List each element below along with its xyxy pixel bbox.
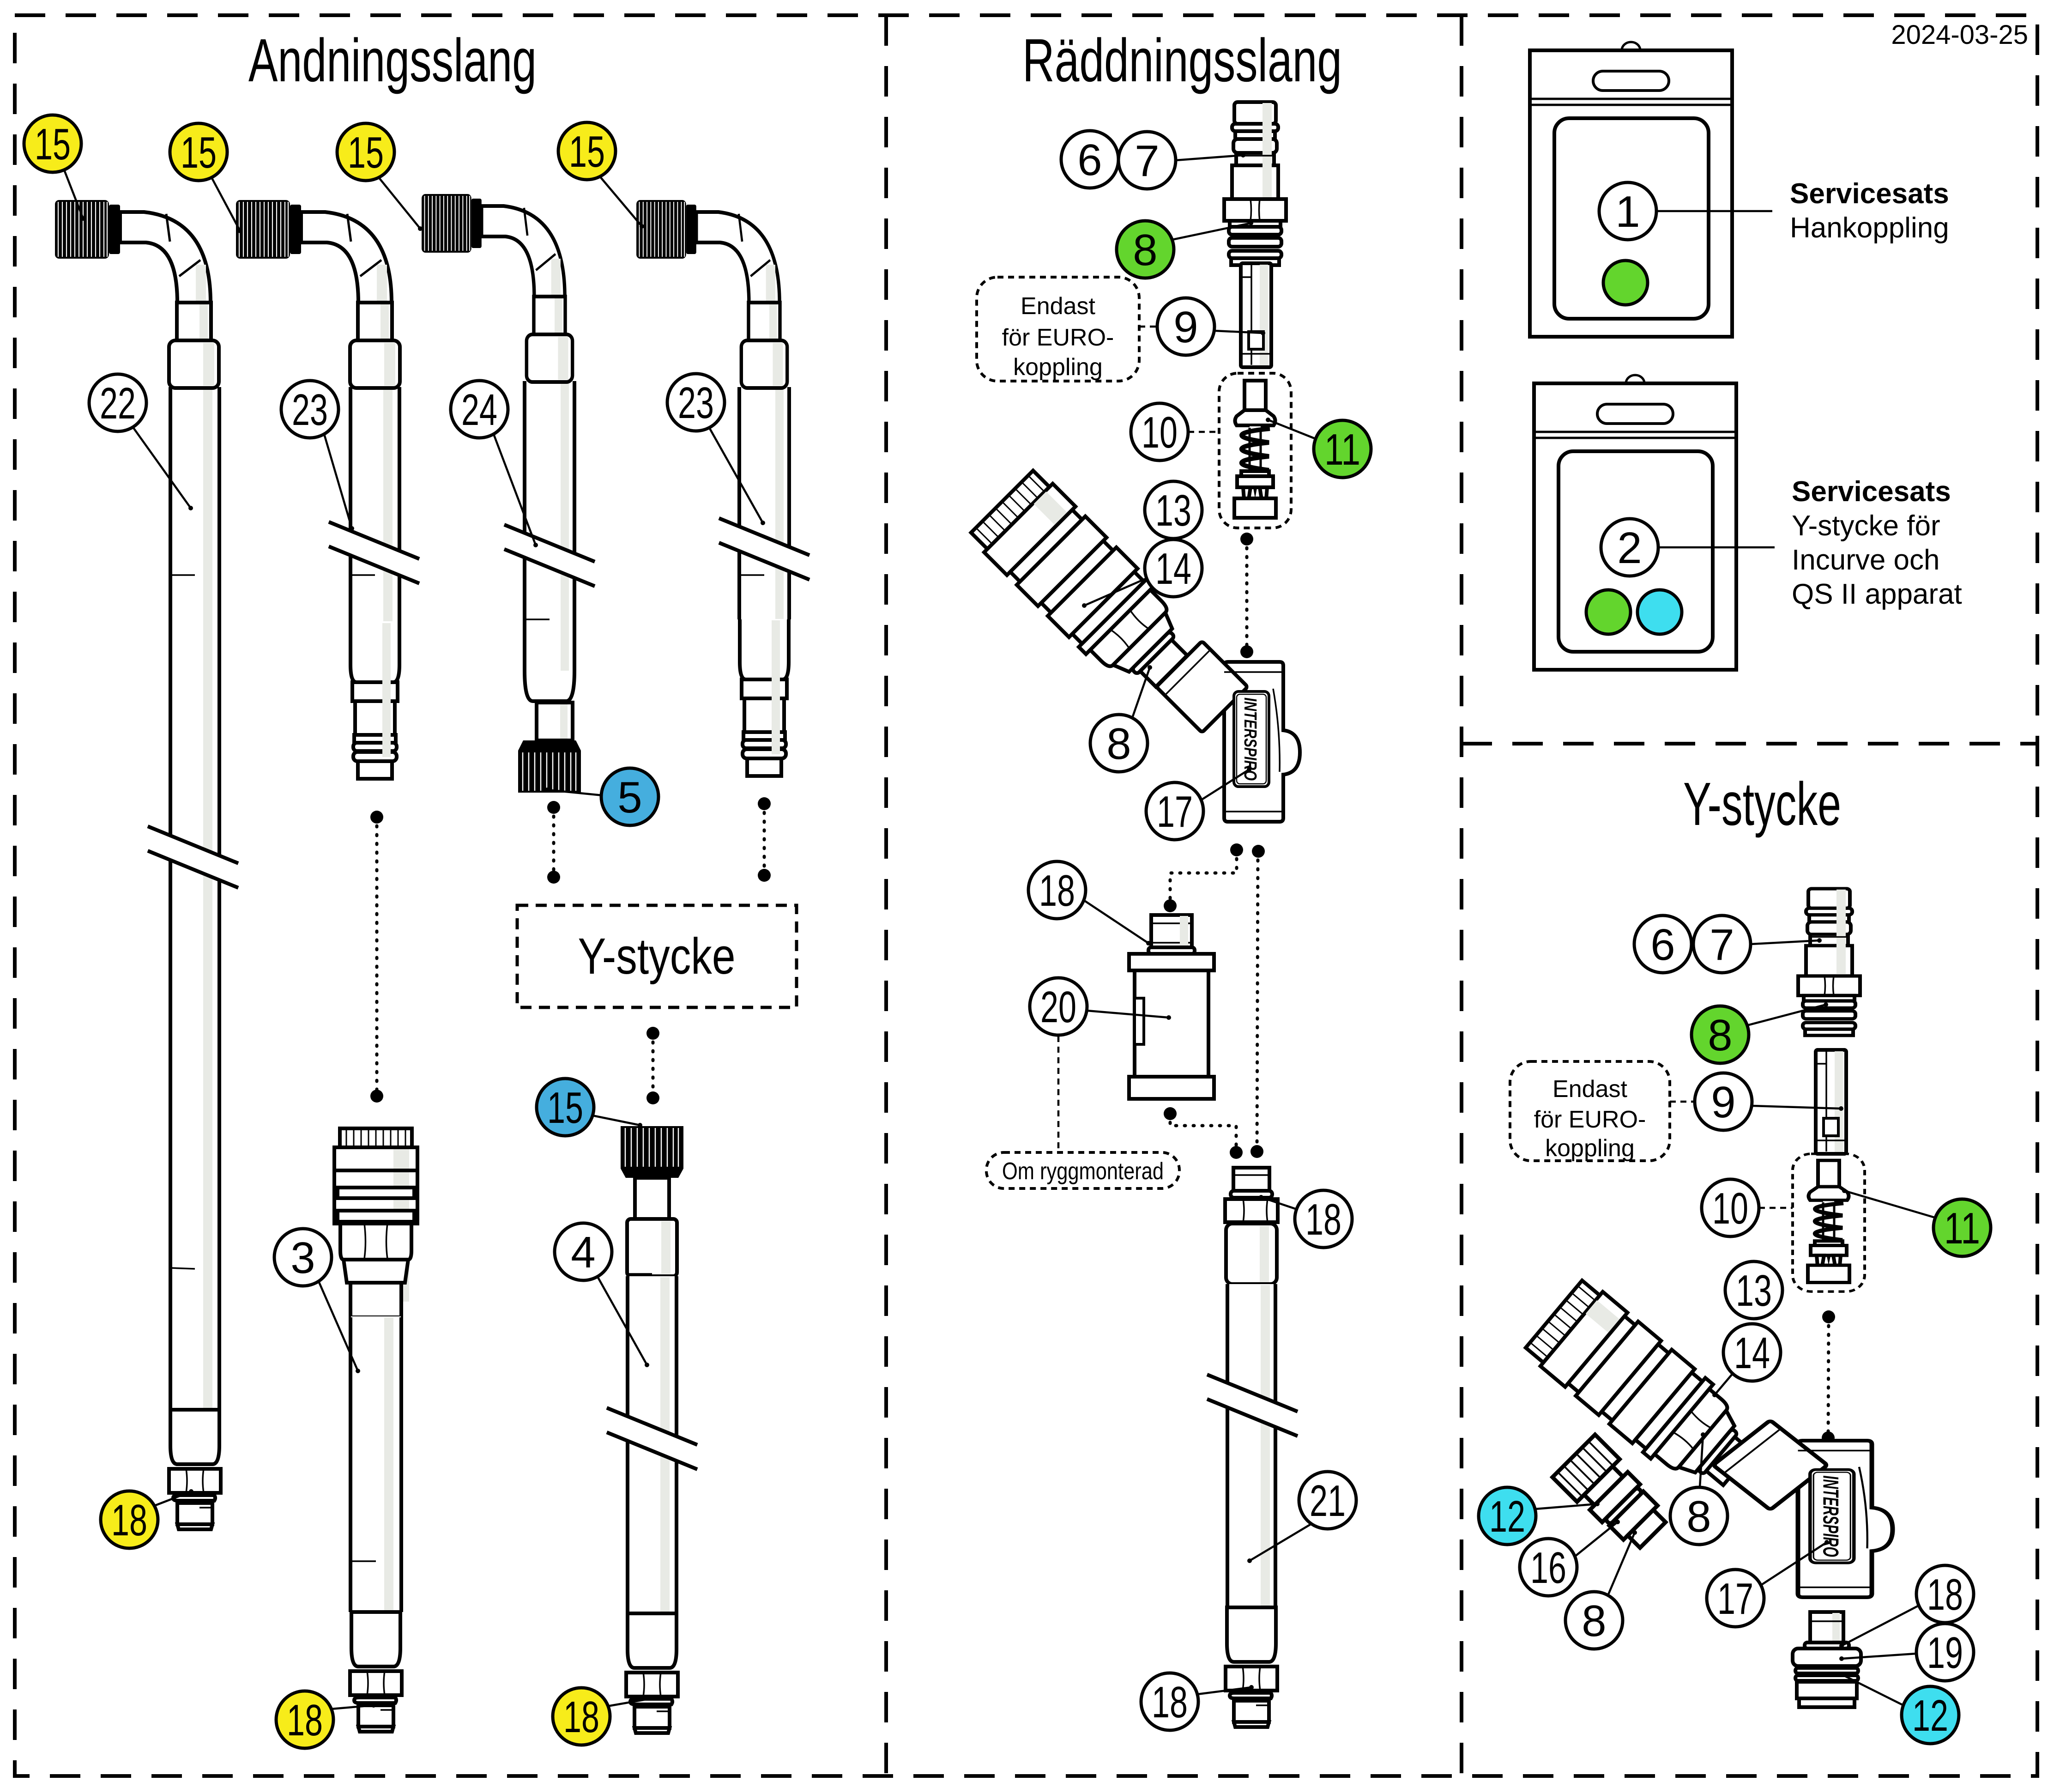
svg-text:20: 20 bbox=[1040, 982, 1076, 1032]
svg-text:2024-03-25: 2024-03-25 bbox=[1891, 20, 2028, 50]
svg-text:15: 15 bbox=[547, 1083, 583, 1133]
svg-text:16: 16 bbox=[1530, 1543, 1566, 1593]
svg-text:11: 11 bbox=[1944, 1204, 1980, 1253]
svg-text:14: 14 bbox=[1155, 544, 1191, 594]
svg-text:13: 13 bbox=[1155, 486, 1191, 535]
svg-text:Y-stycke för: Y-stycke för bbox=[1792, 510, 1940, 542]
svg-text:15: 15 bbox=[348, 128, 384, 177]
svg-text:9: 9 bbox=[1711, 1078, 1735, 1127]
svg-text:11: 11 bbox=[1324, 425, 1360, 474]
svg-text:13: 13 bbox=[1736, 1266, 1772, 1315]
svg-text:18: 18 bbox=[1927, 1570, 1963, 1619]
svg-text:Y-stycke: Y-stycke bbox=[1683, 770, 1841, 838]
svg-text:24: 24 bbox=[461, 385, 497, 435]
svg-text:15: 15 bbox=[35, 120, 71, 169]
svg-text:9: 9 bbox=[1173, 303, 1198, 352]
svg-text:15: 15 bbox=[569, 127, 605, 176]
svg-text:8: 8 bbox=[1106, 719, 1131, 769]
svg-text:19: 19 bbox=[1927, 1628, 1963, 1678]
svg-text:15: 15 bbox=[181, 128, 217, 177]
svg-text:6: 6 bbox=[1077, 135, 1102, 185]
svg-text:Endast: Endast bbox=[1021, 293, 1095, 320]
svg-text:QS II apparat: QS II apparat bbox=[1792, 578, 1962, 610]
svg-text:12: 12 bbox=[1912, 1691, 1948, 1740]
svg-text:17: 17 bbox=[1157, 787, 1193, 836]
svg-text:12: 12 bbox=[1489, 1492, 1525, 1541]
svg-text:Y-stycke: Y-stycke bbox=[578, 928, 736, 985]
svg-text:för EURO-: för EURO- bbox=[1002, 324, 1114, 351]
svg-text:18: 18 bbox=[287, 1696, 323, 1745]
svg-text:5: 5 bbox=[617, 773, 642, 822]
svg-text:Servicesats: Servicesats bbox=[1792, 476, 1951, 508]
svg-text:21: 21 bbox=[1310, 1476, 1346, 1526]
svg-text:7: 7 bbox=[1135, 136, 1159, 186]
svg-text:10: 10 bbox=[1712, 1184, 1748, 1233]
svg-text:7: 7 bbox=[1710, 920, 1734, 970]
svg-text:14: 14 bbox=[1734, 1328, 1770, 1378]
svg-text:18: 18 bbox=[563, 1692, 599, 1742]
svg-text:8: 8 bbox=[1708, 1011, 1732, 1060]
svg-text:23: 23 bbox=[292, 385, 328, 435]
svg-text:18: 18 bbox=[1305, 1195, 1341, 1244]
svg-text:6: 6 bbox=[1650, 920, 1675, 970]
svg-text:för EURO-: för EURO- bbox=[1534, 1106, 1646, 1133]
svg-text:Incurve och: Incurve och bbox=[1792, 544, 1940, 576]
svg-text:10: 10 bbox=[1142, 408, 1178, 457]
svg-text:18: 18 bbox=[1039, 866, 1075, 915]
svg-text:8: 8 bbox=[1686, 1492, 1711, 1541]
svg-text:8: 8 bbox=[1582, 1596, 1606, 1646]
svg-text:Endast: Endast bbox=[1552, 1076, 1627, 1103]
svg-text:17: 17 bbox=[1717, 1574, 1753, 1624]
svg-text:8: 8 bbox=[1133, 225, 1157, 275]
svg-text:3: 3 bbox=[290, 1233, 315, 1283]
svg-text:koppling: koppling bbox=[1545, 1135, 1635, 1162]
svg-text:koppling: koppling bbox=[1013, 354, 1103, 381]
svg-text:18: 18 bbox=[1152, 1678, 1188, 1727]
svg-text:1: 1 bbox=[1615, 187, 1640, 236]
svg-text:18: 18 bbox=[111, 1496, 147, 1545]
svg-text:Om ryggmonterad: Om ryggmonterad bbox=[1002, 1158, 1164, 1185]
svg-text:Räddningsslang: Räddningsslang bbox=[1022, 26, 1342, 94]
svg-text:Andningsslang: Andningsslang bbox=[248, 26, 537, 94]
svg-text:23: 23 bbox=[678, 378, 714, 428]
svg-text:Hankoppling: Hankoppling bbox=[1790, 212, 1949, 244]
svg-text:22: 22 bbox=[100, 379, 136, 428]
svg-text:2: 2 bbox=[1617, 523, 1642, 573]
svg-text:Servicesats: Servicesats bbox=[1790, 178, 1949, 210]
svg-text:4: 4 bbox=[571, 1228, 595, 1277]
